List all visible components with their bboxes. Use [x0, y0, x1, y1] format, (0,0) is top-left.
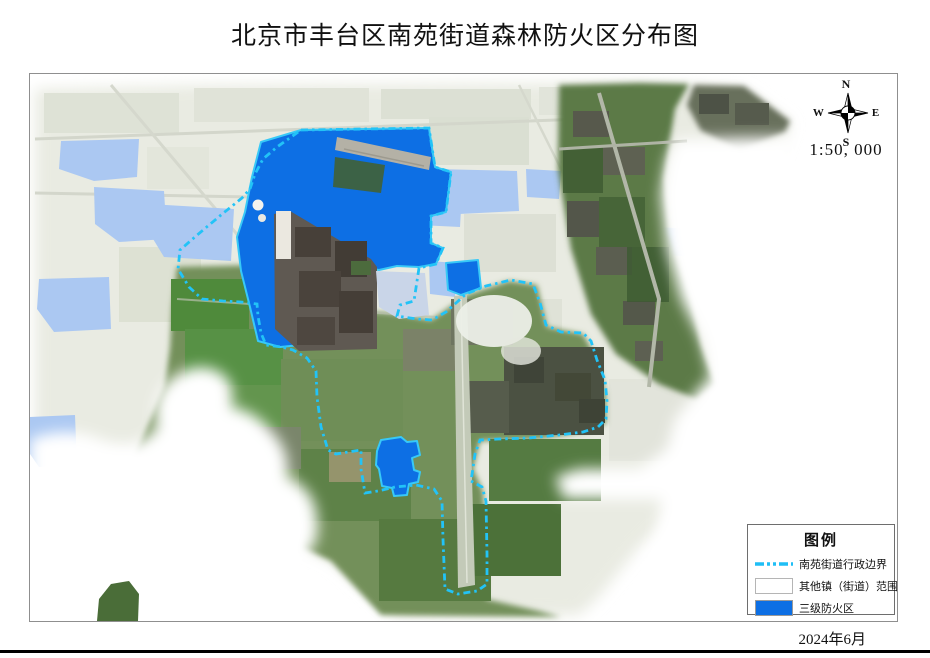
- page-title: 北京市丰台区南苑街道森林防火区分布图: [0, 16, 930, 52]
- blue-box-swatch: [755, 600, 793, 616]
- legend-item-boundary: 南苑街道行政边界: [754, 555, 894, 572]
- scale-label: 1:50, 000: [793, 140, 898, 160]
- legend-item-other-towns: 其他镇（街道）范围: [754, 577, 894, 594]
- compass-rose-icon: [826, 91, 870, 135]
- fire-zone-small: [446, 260, 481, 295]
- compass-east-label: E: [872, 108, 879, 119]
- compass: N W E S: [808, 78, 884, 148]
- white-box-swatch: [755, 578, 793, 594]
- page: 北京市丰台区南苑街道森林防火区分布图: [0, 0, 930, 658]
- compass-west-label: W: [813, 108, 824, 119]
- boundary-line-swatch-icon: [755, 560, 793, 568]
- legend-label: 其他镇（街道）范围: [799, 578, 898, 594]
- legend-item-fire-zone: 三级防火区: [754, 599, 894, 616]
- legend-label: 三级防火区: [799, 600, 854, 616]
- legend-box: 图例 南苑街道行政边界 其他镇（街道）范围 三级防火区: [747, 524, 895, 615]
- legend-label: 南苑街道行政边界: [799, 556, 887, 572]
- bottom-rule: [0, 650, 930, 653]
- map-frame: N W E S 1:50, 00: [29, 73, 898, 622]
- map-date: 2024年6月: [798, 628, 866, 649]
- compass-north-label: N: [808, 78, 884, 90]
- legend-title: 图例: [748, 529, 894, 550]
